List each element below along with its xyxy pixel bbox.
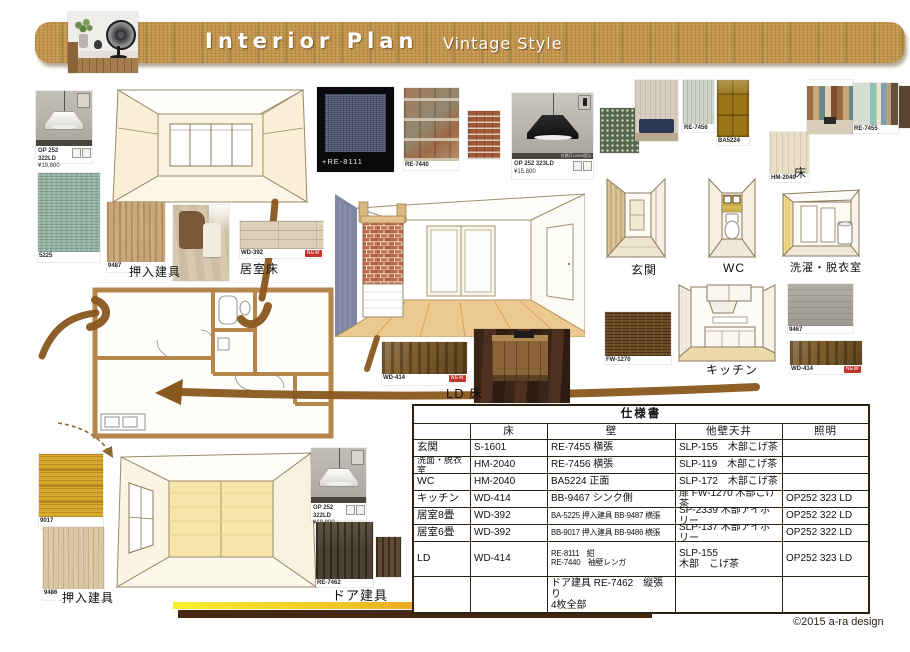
lamp-caption-strip: 白熱灯100W相当 [512,153,593,159]
swatch-code: 9467 [789,327,802,334]
spec-cell: ドア建具 RE-7462 縦張り 4枚全部 [547,577,675,612]
table-top [68,58,138,73]
swatch-texture-concrete [788,284,853,326]
label-wc: WC [723,261,745,275]
swatch-code: WD-414 [383,375,405,382]
lamp-card-black: 白熱灯100W相当 OP 252 323LD¥15,800 [512,93,593,179]
spec-row: 居室8畳WD-392BA-5225 押入建具 BB-9487 横張SP-2339… [414,507,868,524]
spec-cell [470,577,547,612]
header-banner: Interior Plan Vintage Style [35,22,905,63]
new-tag: NEW [305,250,322,257]
lamp-rim [326,482,352,486]
sketch-ld-room [335,182,585,337]
swatch-code: 5225 [39,253,52,260]
lamp-cord [64,91,65,112]
swatch-code: HM-2040 [771,175,796,182]
label-kitchen: キッチン [706,361,758,378]
swatch-card-fw1270: FW-1270 [605,312,671,364]
label-genkan: 玄関 [631,261,657,278]
spec-cell: WD-414 [470,542,547,576]
label-yuka: 床 [794,164,807,181]
label-kyoshitsu-yuka: 居室床 [240,260,279,277]
swatch-card-re7462: RE-7462 [316,522,373,587]
swatch-card-wd414-ld: WD-414 NEW [382,342,467,385]
new-tag: NEW [844,366,861,373]
spec-cell: 玄関 [414,440,470,456]
swatch-card-re7456: RE-7456 [683,80,714,132]
spec-cell: RE-8111 紺 RE-7440 袖壁レンガ [547,542,675,576]
swatch-card-re7440: RE-7440 [404,88,459,170]
sketch-kitchen [673,283,781,363]
spec-cell: BB-9467 シンク側 [547,491,675,507]
copyright-text: ©2015 a-ra design [793,616,884,628]
swatch-texture-darkdoor [316,522,373,579]
swatch-texture-olive-tile [717,80,749,137]
swatch-texture-navy [325,94,386,152]
lamp-rim [51,125,77,129]
spec-cell: WC [414,474,470,490]
spec-cell [782,440,868,456]
lamp-caption-strip [311,497,366,503]
spec-row: 洗面・脱衣室HM-2040RE-7456 横張SLP-119 木部こげ茶 [414,456,868,473]
spec-row: LDWD-414RE-8111 紺 RE-7440 袖壁レンガSLP-155 木… [414,541,868,576]
lamp-card-white-top: OP 252 322LD¥19,800 [36,91,92,163]
swatch-code: +RE-8111 [322,157,363,166]
spec-row: WCHM-2040BA5224 正面SLP-172 木部こげ茶 [414,473,868,490]
spec-cell [782,474,868,490]
lamp-cord [553,93,554,118]
lamp-inset-box [351,450,364,465]
swatch-card-wd414-right: WD-414 NEW [790,341,862,374]
spec-cell: SLP-155 木部こげ茶 [675,440,782,456]
floor-strip [635,133,678,141]
photo-ld-floor [474,329,570,403]
swatch-card-9017: 9017 [39,454,103,528]
mosaic-tiles [807,86,853,120]
spec-cell: キッチン [414,491,470,507]
spec-cell: 居室6畳 [414,525,470,541]
spec-cell [675,577,782,612]
lamp-spec-tags [573,161,592,176]
spec-cell: SLP-119 木部こげ茶 [675,457,782,473]
lamp-cord [339,448,340,469]
spec-cell: OP252 322 LD [782,508,868,524]
spec-header-row: 床壁他壁天井照明 [414,423,868,439]
label-ld-yuka: LD 床 [446,383,483,402]
armchair [179,211,205,249]
spec-cell: OP252 322 LD [782,525,868,541]
label-oshiire-top: 押入建具 [129,263,181,280]
swatch-code: RE-7440 [405,162,429,169]
swatch-texture-graywood [683,80,714,124]
swatch-code: 9017 [40,518,53,525]
spec-cell: HM-2040 [470,457,547,473]
photo-bench-room [635,80,678,141]
swatch-dark-sliver [899,86,910,128]
spec-cell: WD-414 [470,491,547,507]
spec-cell [782,577,868,612]
page-title: Interior Plan [205,29,418,53]
spec-row: 玄関S-1601RE-7455 横張SLP-155 木部こげ茶 [414,439,868,456]
spec-cell: RE-7456 横張 [547,457,675,473]
spec-cell: OP252 323 LD [782,542,868,576]
swatch-texture-stripes [853,83,898,125]
photo-kyoshitsu-floor [173,205,229,281]
swatch-green-floral [600,108,639,153]
spec-cell: LD [414,542,470,576]
clock [94,40,102,49]
lamp-spec-tags [72,148,91,171]
swatch-texture-wood [107,202,165,262]
swatch-darkwood-sample [376,537,401,577]
spec-cell: BA5224 正面 [547,474,675,490]
spec-row: 居室6畳WD-392BB-9017 押入建具 BB-9486 横張SLP-137… [414,524,868,541]
vase [79,34,88,48]
spec-cell: BA-5225 押入建具 BB-9487 横張 [547,508,675,524]
spec-cell: BB-9017 押入建具 BB-9486 横張 [547,525,675,541]
interior-plan-board: Interior Plan Vintage Style [0,0,910,652]
spec-row: キッチンWD-414BB-9467 シンク側扉 FW-1270 木部こげ茶OP2… [414,490,868,507]
spec-table-title: 仕様書 [414,406,868,423]
new-tag: NEW [449,375,466,382]
swatch-code: FW-1270 [606,357,631,364]
label-sentaku: 洗濯・脱衣室 [790,259,862,275]
swatch-code: BA5224 [718,138,740,145]
chair-back [68,42,78,73]
lamp-photo: 白熱灯100W相当 [512,93,593,159]
navy-bench [639,119,674,133]
swatch-card-re8111: +RE-8111 [317,87,394,172]
lamp-code-price: OP 252 322LD¥19,800 [38,148,72,171]
lamp-photo [36,91,92,146]
lamp-photo [311,448,366,503]
swatch-card-9487: 9487 [107,202,165,272]
page-subtitle: Vintage Style [443,34,563,53]
spec-cell: RE-7455 横張 [547,440,675,456]
swatch-code: 9486 [44,590,57,597]
swatch-card-5225: 5225 [38,173,100,262]
spec-cell: 居室8畳 [414,508,470,524]
spec-col-header: 壁 [547,424,675,439]
sketch-room-8jo [108,84,313,206]
spec-col-header: 床 [470,424,547,439]
spec-col-header: 照明 [782,424,868,439]
spec-cell: OP252 323 LD [782,491,868,507]
hero-photo [68,12,138,73]
arrow-dashed-head [102,446,113,458]
swatch-code: RE-7455 [854,126,878,133]
swatch-code: 9487 [108,263,121,270]
swatch-code: WD-414 [791,366,813,373]
spec-col-header: 他壁天井 [675,424,782,439]
swatch-texture-brownwood [790,341,862,365]
spec-cell: SLP-172 木部こげ茶 [675,474,782,490]
laptop [514,331,534,338]
label-oshiire-bottom: 押入建具 [62,589,114,606]
spec-cell: 洗面・脱衣室 [414,457,470,473]
swatch-card-ba5224: BA5224 [717,80,749,145]
swatch-texture-plank [240,221,323,249]
sketch-wc [705,169,759,262]
spec-cell: SLP-155 木部 こげ茶 [675,542,782,576]
lamp-code-price: OP 252 323LD¥15,800 [514,161,554,176]
spec-cell: WD-392 [470,508,547,524]
spec-cell [414,577,470,612]
lamp-inset-box [77,93,90,108]
swatch-card-re7455-stripes: RE-7455 [853,83,898,133]
swatch-card-wd392: WD-392 NEW [240,221,323,258]
fan [106,20,136,50]
swatch-texture-yellow [39,454,103,517]
lamp-card-white-bottom: OP 252 322LD¥19,800 [311,448,366,520]
white-bag [203,223,221,257]
swatch-texture-green [38,173,100,252]
swatch-texture-brick [404,88,459,161]
spec-cell: WD-392 [470,525,547,541]
sketch-laundry [781,184,861,259]
sketch-room-6jo [113,449,320,591]
spec-table: 仕様書 床壁他壁天井照明 玄関S-1601RE-7455 横張SLP-155 木… [412,404,870,614]
spec-cell: 扉 FW-1270 木部こげ茶 [675,491,782,507]
floor-plan-sketch [85,278,340,446]
tv-screen [824,117,836,124]
photo-mosaic-wall [807,80,853,134]
spec-cell: S-1601 [470,440,547,456]
lamp-inset-box [578,95,591,110]
swatch-card-9467: 9467 [788,284,853,333]
swatch-texture-lightwood [43,527,104,589]
sketch-genkan [603,171,669,261]
spec-cell: HM-2040 [470,474,547,490]
spec-col-header [414,424,470,439]
swatch-code: WD-392 [241,250,263,257]
swatch-brick-sample [468,111,500,159]
swatch-texture-darkwood [605,312,671,356]
wood-cabinet [492,335,548,381]
lamp-caption-strip [36,140,92,146]
spec-cell: SLP-137 木部アイボリー [675,525,782,541]
swatch-code: RE-7456 [684,125,708,132]
arrow-short-diagonal [367,338,377,369]
lamp-rim [534,135,572,140]
spec-row: ドア建具 RE-7462 縦張り 4枚全部 [414,576,868,612]
spec-cell [782,457,868,473]
swatch-texture-brownwood [382,342,467,374]
spec-cell: SP-2339 木部アイボリー [675,508,782,524]
